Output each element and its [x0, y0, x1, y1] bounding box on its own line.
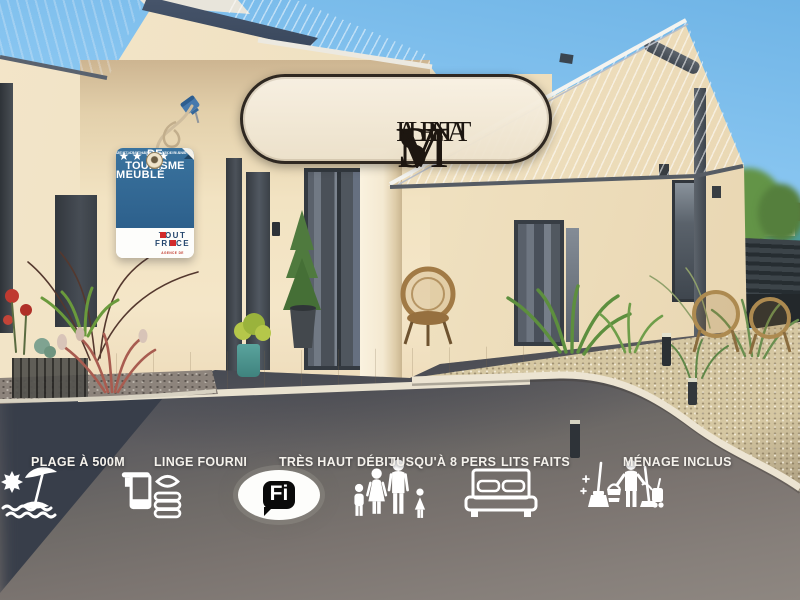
brand-rest: ART	[397, 119, 459, 147]
amenity-menage: MÉNAGE INCLUS	[623, 448, 741, 552]
metal-grate	[12, 358, 88, 398]
intercom	[272, 222, 280, 236]
wifi-fi-text: Fi	[263, 481, 296, 509]
sliding-door	[514, 220, 564, 346]
badge-folded-corner	[182, 148, 194, 160]
side-glass-panel	[566, 228, 579, 342]
porch-window-left	[55, 195, 97, 327]
wifi-logo: Wi Fi	[238, 470, 320, 520]
brand-logo: V ILLA S AINT M ART	[240, 74, 552, 164]
atout-france-text: TOUT FRNCE AGENCE DE DÉVELOPPEMENT TOURI…	[155, 232, 190, 248]
amenity-label: MÉNAGE INCLUS	[623, 455, 732, 469]
fence-shadow	[740, 294, 800, 328]
wall-vent	[712, 186, 721, 198]
atout-red-square-icon	[170, 240, 176, 246]
atout-red-square-icon	[160, 232, 166, 238]
amenity-label: LINGE FOURNI	[154, 455, 247, 469]
atout-t2a: FR	[155, 239, 169, 248]
tourism-badge: MEUBLÉ DE TOURISME ★★★★ CE CLASSEMENT VA…	[100, 90, 220, 270]
atout-subtitle: AGENCE DE DÉVELOPPEMENT TOURISTIQUE	[155, 249, 190, 258]
porch-side-edge	[0, 83, 13, 333]
teal-planter	[237, 344, 260, 377]
badge-grommet	[146, 152, 163, 169]
amenity-label: PLAGE À 500M	[31, 455, 125, 469]
amenity-label: LITS FAITS	[501, 455, 570, 469]
porch-door-narrow	[246, 172, 270, 370]
background-tree	[758, 184, 800, 242]
promo-image: MEUBLÉ DE TOURISME ★★★★ CE CLASSEMENT VA…	[0, 0, 800, 600]
atout-france-logo: TOUT FRNCE AGENCE DE DÉVELOPPEMENT TOURI…	[116, 228, 194, 258]
